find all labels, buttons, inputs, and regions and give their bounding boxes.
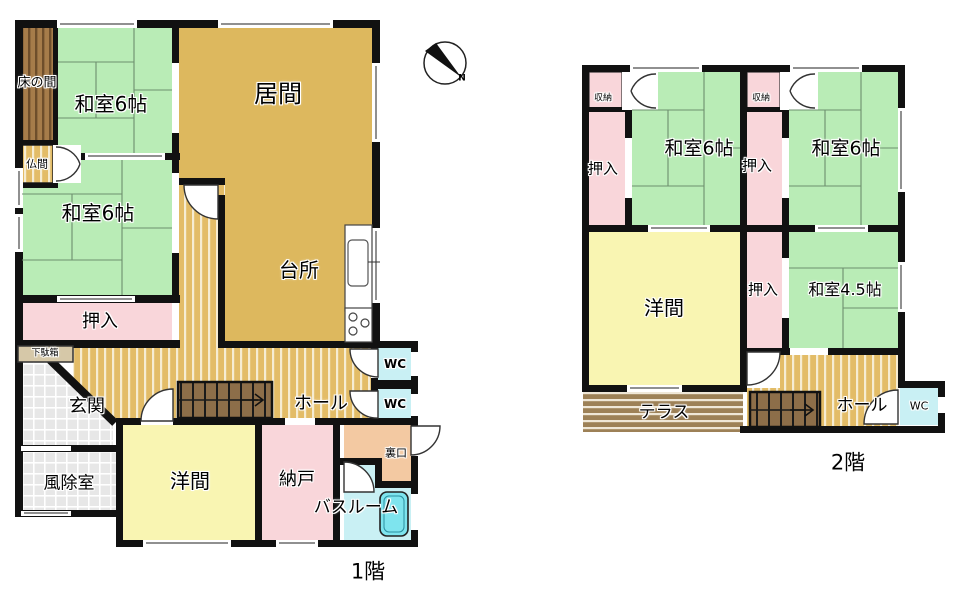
label-wc2: WC (384, 398, 406, 410)
label-genkan: 玄関 (69, 398, 105, 416)
floor1-caption: 1階 (351, 562, 385, 583)
label-washitsu-w: 和室6帖 (62, 203, 135, 223)
label-oshiire-1f: 押入 (82, 313, 118, 331)
label-hall-1f: ホール (294, 395, 348, 413)
label-washitsu-45: 和室4.5帖 (808, 282, 881, 298)
label-terrace: テラス (639, 405, 690, 422)
stairs-2f (750, 392, 820, 427)
floor2-caption: 2階 (831, 453, 865, 474)
label-wc-2f: WC (910, 401, 929, 412)
label-bathroom: バスルーム (314, 500, 399, 517)
floorplan-canvas: 床の間 和室6帖 居間 仏間 和室6帖 台所 押入 下駄箱 玄関 風除室 洋間 … (0, 0, 961, 609)
label-washitsu-2f-right: 和室6帖 (811, 140, 880, 159)
label-fujoshitsu: 風除室 (44, 476, 95, 493)
label-yoma-2f: 洋間 (644, 298, 684, 318)
label-washitsu-nw: 和室6帖 (75, 94, 148, 114)
stove (345, 308, 372, 342)
label-getabako: 下駄箱 (31, 350, 58, 359)
label-shuno-left: 収納 (594, 95, 612, 104)
label-daidokoro: 台所 (279, 260, 319, 280)
compass-north-label: N (458, 75, 466, 84)
label-oshiire-2f-right-top: 押入 (742, 159, 772, 174)
label-wc1: WC (384, 358, 406, 370)
label-washitsu-2f-left: 和室6帖 (664, 140, 733, 159)
label-shuno-right: 収納 (752, 95, 770, 104)
label-nando: 納戸 (279, 471, 315, 489)
label-uraguchi: 裏口 (385, 448, 407, 459)
stairs-1f (178, 382, 272, 418)
label-oshiire-2f-left: 押入 (588, 162, 618, 177)
label-oshiire-2f-right-bottom: 押入 (748, 283, 778, 298)
label-yoma-1f: 洋間 (170, 471, 210, 491)
label-ima: 居間 (254, 82, 302, 106)
label-butsuma: 仏間 (26, 159, 48, 170)
label-hall-2f: ホール (837, 398, 888, 415)
label-tokonoma: 床の間 (17, 77, 56, 90)
